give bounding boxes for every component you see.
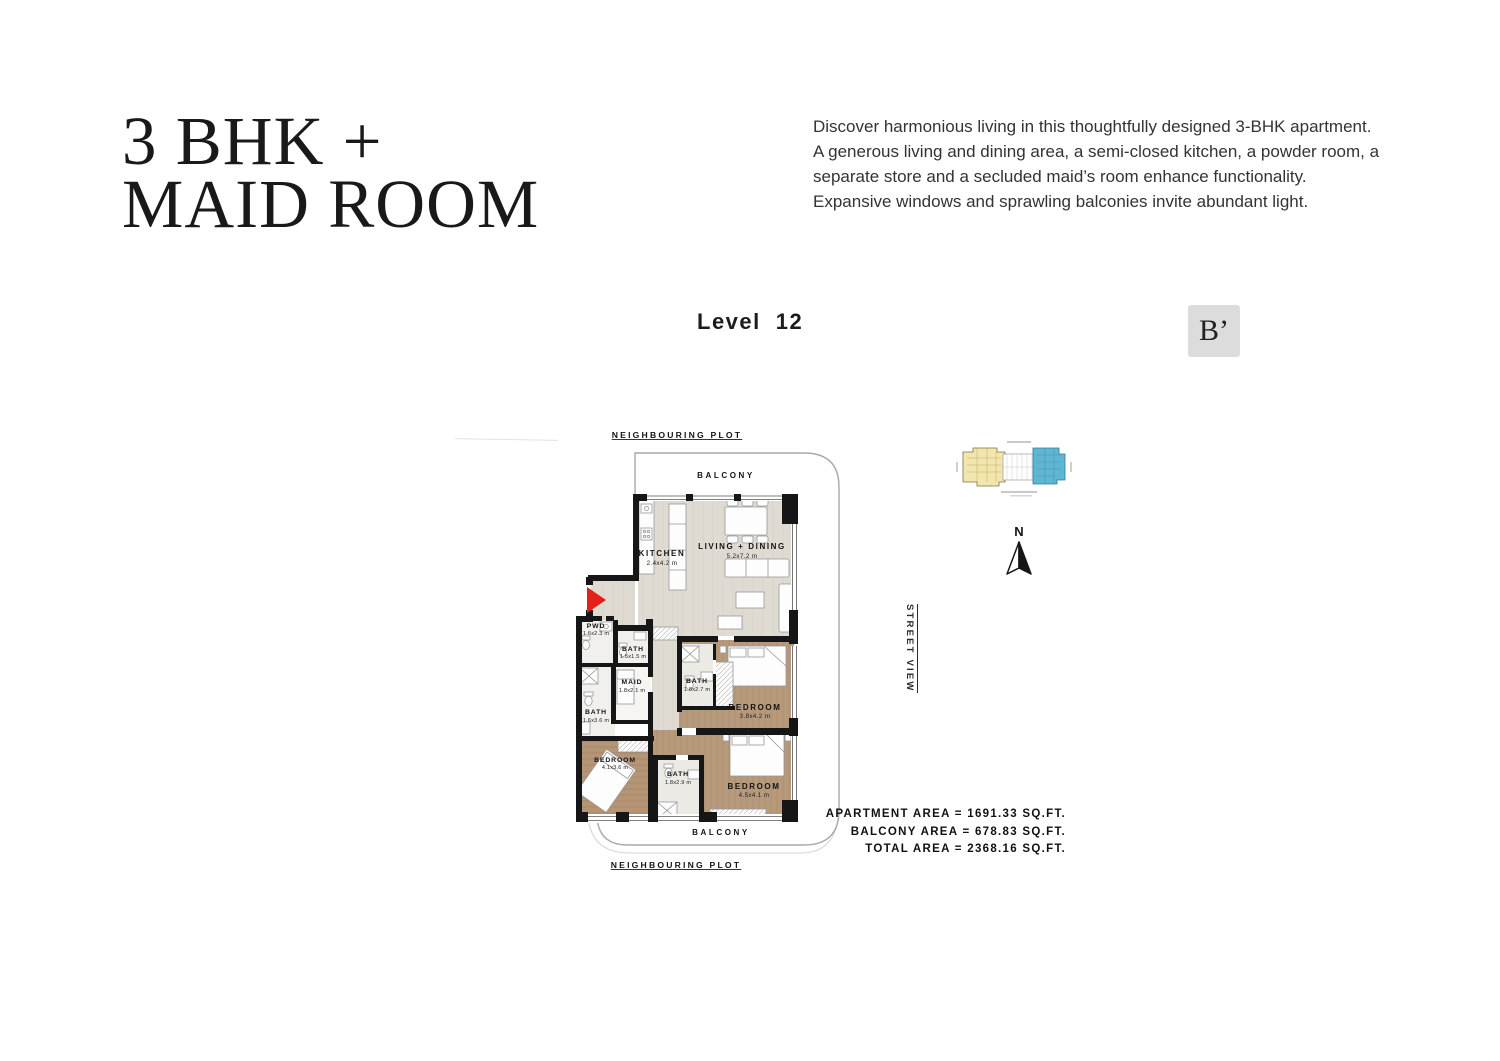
- description-line: A generous living and dining area, a sem…: [813, 139, 1413, 164]
- room-dim-bath-mid: 1.8x2.7 m: [684, 687, 711, 693]
- room-label-bath-bottom: BATH: [667, 771, 689, 778]
- key-plan-left-wing: [963, 448, 1005, 486]
- room-label-bath-small: BATH: [622, 646, 644, 653]
- room-label-bedroom-right: BEDROOM: [728, 782, 781, 791]
- description: Discover harmonious living in this thoug…: [813, 114, 1413, 214]
- balcony-area-value: BALCONY AREA = 678.83 SQ.FT.: [800, 824, 1066, 842]
- neighbouring-plot-bottom-label: NEIGHBOURING PLOT: [611, 860, 742, 870]
- room-dim-bedroom-mid: 3.8x4.2 m: [740, 713, 771, 720]
- section-badge-label: B’: [1199, 314, 1229, 348]
- page-title: 3 BHK + MAID ROOM: [122, 110, 539, 236]
- street-view-label: STREET VIEW: [904, 604, 918, 693]
- room-label-bedroom-mid: BEDROOM: [729, 703, 782, 712]
- key-plan-right-wing-highlighted: [1033, 448, 1065, 484]
- balcony-top-label: BALCONY: [697, 471, 755, 480]
- room-dim-bedroom-left: 4.1x3.6 m: [602, 765, 629, 771]
- level-number: 12: [776, 309, 803, 335]
- key-plan-center: [1003, 454, 1035, 480]
- room-dim-bath-bottom: 1.8x2.9 m: [665, 780, 692, 786]
- description-line: Expansive windows and sprawling balconie…: [813, 189, 1413, 214]
- room-dim-bath-left: 1.6x3.6 m: [583, 718, 610, 724]
- apartment-area-value: APARTMENT AREA = 1691.33 SQ.FT.: [800, 806, 1066, 824]
- neighbouring-plot-top-label: NEIGHBOURING PLOT: [612, 430, 743, 440]
- level-label: Level: [697, 309, 761, 335]
- room-label-living-dining: LIVING + DINING: [698, 542, 786, 551]
- north-arrow-icon: N: [1002, 522, 1038, 582]
- description-line: separate store and a secluded maid’s roo…: [813, 164, 1413, 189]
- room-label-pwd: PWD: [587, 623, 606, 630]
- section-badge[interactable]: B’: [1188, 305, 1240, 357]
- north-label: N: [1014, 524, 1023, 539]
- room-label-maid: MAID: [622, 679, 643, 686]
- room-dim-kitchen: 2.4x4.2 m: [647, 560, 678, 567]
- room-label-kitchen: KITCHEN: [639, 549, 686, 558]
- room-dim-bedroom-right: 4.5x4.1 m: [739, 792, 770, 799]
- level-indicator: Level 12: [697, 309, 803, 335]
- total-area-value: TOTAL AREA = 2368.16 SQ.FT.: [800, 841, 1066, 859]
- room-dim-living-dining: 5.2x7.2 m: [727, 553, 758, 560]
- room-dim-pwd: 1.6x2.3 m: [583, 631, 610, 637]
- page-title-line2: MAID ROOM: [122, 173, 539, 236]
- room-label-bath-left: BATH: [585, 709, 607, 716]
- area-summary: APARTMENT AREA = 1691.33 SQ.FT. BALCONY …: [800, 806, 1066, 859]
- brochure-page: 3 BHK + MAID ROOM Discover harmonious li…: [0, 0, 1500, 1061]
- room-label-bedroom-left: BEDROOM: [594, 757, 636, 764]
- page-title-line1: 3 BHK +: [122, 110, 539, 173]
- balcony-bottom-label: BALCONY: [692, 828, 750, 837]
- room-label-bath-mid: BATH: [686, 678, 708, 685]
- room-dim-maid: 1.8x2.1 m: [619, 688, 646, 694]
- key-plan: [955, 438, 1073, 500]
- description-line: Discover harmonious living in this thoug…: [813, 114, 1413, 139]
- room-dim-bath-small: 1.5x1.5 m: [620, 654, 647, 660]
- plot-boundary-line: [455, 438, 558, 441]
